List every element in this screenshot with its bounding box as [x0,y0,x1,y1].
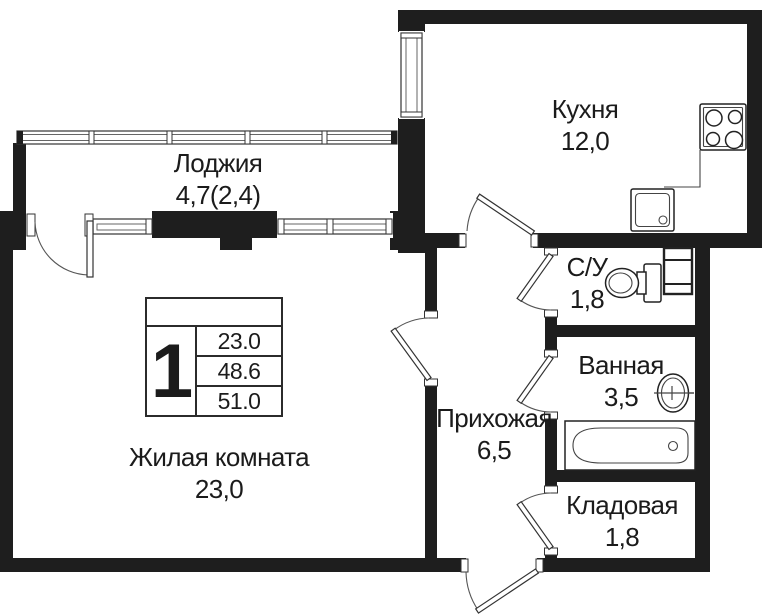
room-name: Кладовая [566,489,678,521]
living-room-window-2 [277,213,393,238]
kitchen-sink-icon [631,189,674,231]
room-label-living-room: Жилая комната 23,0 [129,441,309,505]
toilet-icon [606,264,662,302]
apartment-info-table: 1 23.0 48.6 51.0 [145,297,283,417]
room-name: Кухня [552,93,619,125]
room-area: 4,7(2,4) [174,179,263,211]
room-label-storage: Кладовая 1,8 [566,489,678,553]
room-label-kitchen: Кухня 12,0 [552,93,619,157]
room-area: 23,0 [129,473,309,505]
room-label-hallway: Прихожая 6,5 [436,402,552,466]
room-name: С/У [567,251,608,283]
info-table-row-total-area: 51.0 [197,385,281,415]
room-name: Прихожая [436,402,552,434]
room-label-loggia: Лоджия 4,7(2,4) [174,147,263,211]
stove-icon [700,104,746,150]
info-table-row-area: 48.6 [197,355,281,385]
room-name: Лоджия [174,147,263,179]
room-area: 12,0 [552,125,619,157]
ventilation-shaft-icon [664,248,692,294]
room-area: 1,8 [567,283,608,315]
balcony-door [27,214,93,277]
entrance-door [461,559,543,613]
room-area: 6,5 [436,434,552,466]
kitchen-counter-line [664,150,700,187]
info-table-empty-header [147,299,281,327]
loggia-window-band [17,131,397,144]
living-room-window-1 [85,213,152,238]
kitchen-window [399,31,424,119]
storage-door [517,486,557,555]
room-area: 1,8 [566,521,678,553]
rooms-count: 1 [147,327,197,415]
info-table-row-living-area: 23.0 [197,327,281,355]
kitchen-door [459,194,538,247]
bathtub-icon [565,421,695,470]
room-area: 3,5 [578,381,663,413]
room-label-wc: С/У 1,8 [567,251,608,315]
room-label-bathroom: Ванная 3,5 [578,349,663,413]
floor-plan: Лоджия 4,7(2,4) Кухня 12,0 С/У 1,8 Ванна… [0,0,762,614]
living-room-door [391,311,437,386]
room-name: Жилая комната [129,441,309,473]
room-name: Ванная [578,349,663,381]
wc-door [517,248,557,317]
